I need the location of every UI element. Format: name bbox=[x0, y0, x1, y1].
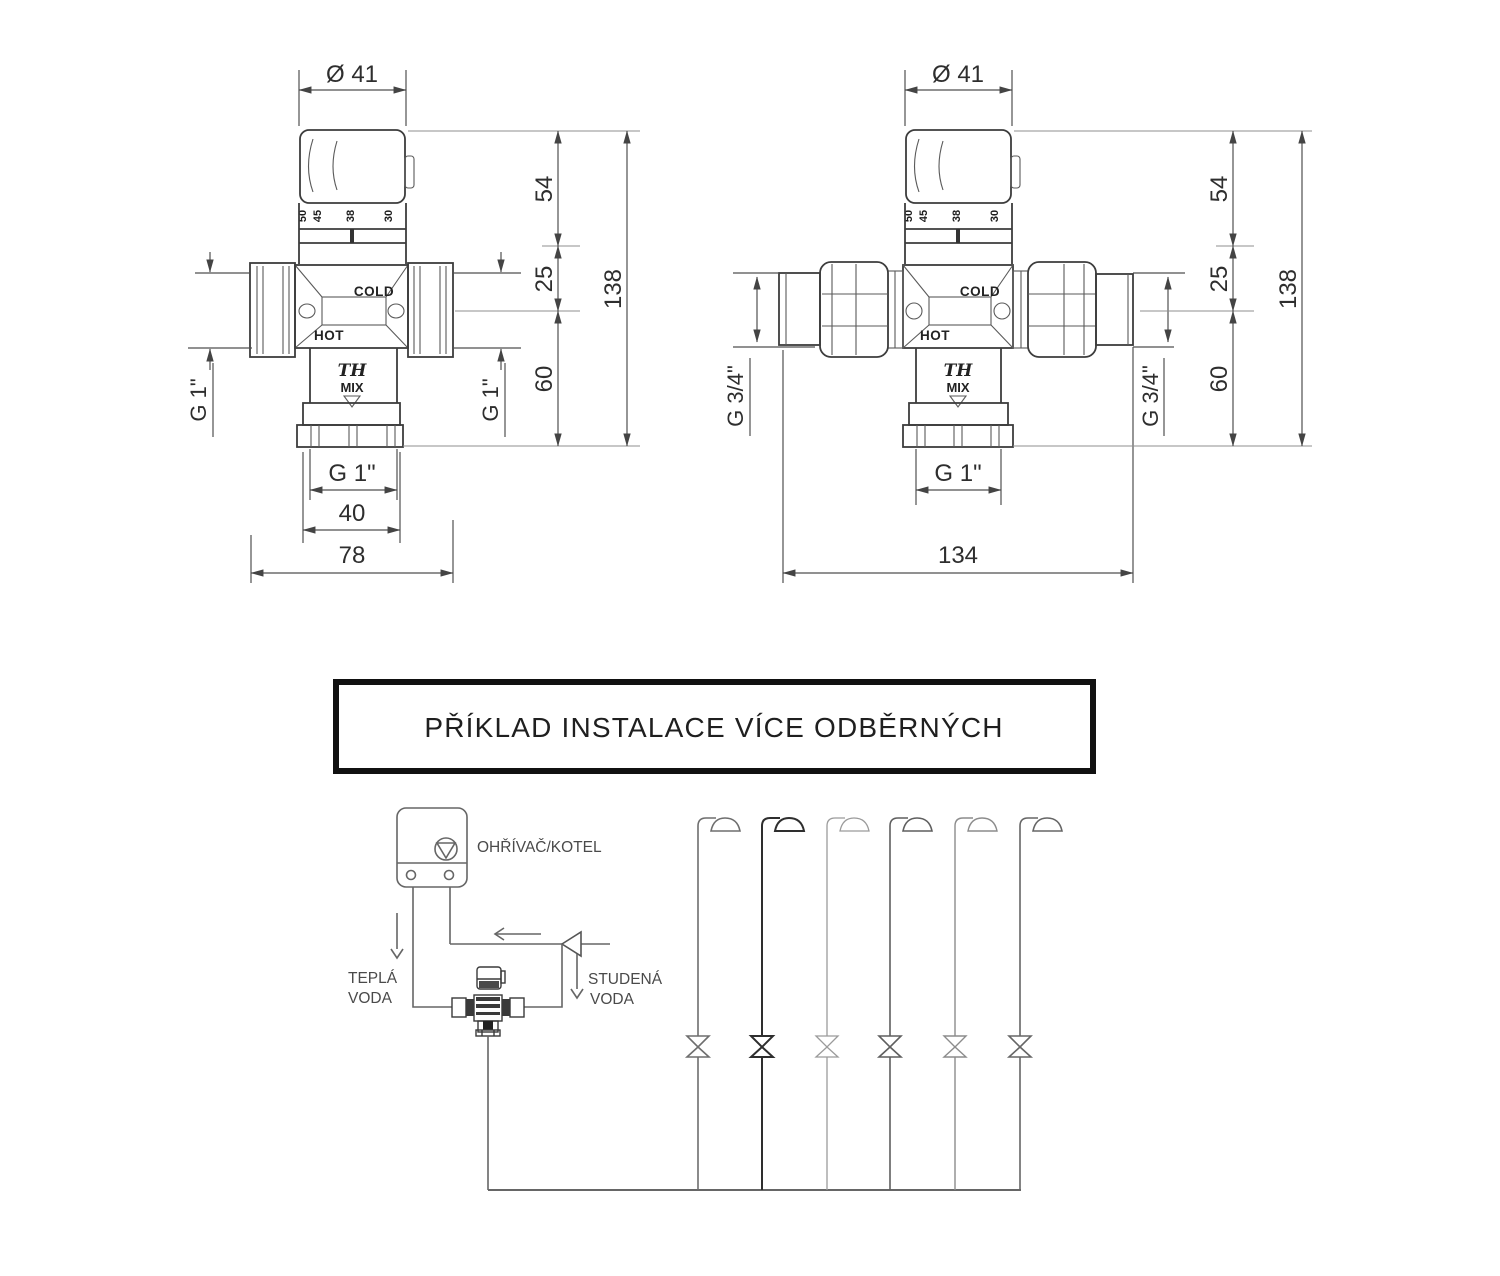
cold-water-label-line2: VODA bbox=[590, 991, 635, 1008]
cold-port-label: COLD bbox=[354, 284, 394, 299]
cold-flow-arrow-icon bbox=[495, 928, 541, 940]
shower-head-icon bbox=[775, 818, 804, 831]
title-box: PŘÍKLAD INSTALACE VÍCE ODBĚRNÝCH bbox=[336, 682, 1093, 771]
flow-direction-triangle bbox=[344, 396, 360, 407]
tailpiece-left bbox=[779, 273, 820, 345]
brand-label: TH bbox=[338, 361, 368, 381]
shower-head-icon bbox=[1033, 818, 1062, 831]
total-height-label: 138 bbox=[600, 269, 627, 309]
cold-port-label: COLD bbox=[960, 284, 1000, 299]
lower-height-label: 60 bbox=[531, 366, 558, 393]
hot-port-label: HOT bbox=[314, 328, 344, 343]
knob-height-label: 54 bbox=[531, 176, 558, 203]
valve-right-union-nuts bbox=[779, 262, 1133, 357]
valve-right-outlet: TH MIX bbox=[903, 348, 1013, 447]
valve-right-diameter-label: Ø 41 bbox=[932, 61, 984, 88]
valve-left-bottom-dims: G 1" 40 78 bbox=[251, 449, 453, 583]
valve-right-port-right-dim: G 3/4" bbox=[1133, 273, 1185, 436]
body-height-label: 25 bbox=[531, 266, 558, 293]
valve-right-diameter-dim: Ø 41 bbox=[905, 61, 1012, 126]
valve-right-drawing: Ø 41 50 45 38 30 COLD HO bbox=[723, 61, 1312, 583]
scale-mark: 38 bbox=[951, 210, 963, 222]
shower-riser bbox=[944, 818, 997, 1190]
shower-riser bbox=[687, 818, 740, 1190]
shower-riser bbox=[816, 818, 869, 1190]
hot-flow-arrow-icon bbox=[391, 913, 403, 958]
scale-mark: 38 bbox=[345, 210, 357, 222]
valve-left-knob: 50 45 38 30 bbox=[297, 130, 414, 264]
valve-left-side-nuts bbox=[250, 263, 453, 357]
valve-left-outlet: TH MIX bbox=[297, 348, 403, 447]
riser-valve-icon bbox=[687, 1036, 709, 1057]
screw-hole bbox=[994, 303, 1010, 319]
valve-left-port-right-dim: G 1" bbox=[453, 252, 521, 437]
hot-water-label-line2: VODA bbox=[348, 990, 393, 1007]
riser-valve-icon bbox=[1009, 1036, 1031, 1057]
side-port-right-label: G 1" bbox=[478, 378, 503, 421]
screw-hole bbox=[388, 304, 404, 318]
overall-width-label: 78 bbox=[339, 542, 366, 569]
installation-schematic: OHŘÍVAČ/KOTEL TEPLÁ VODA STUDENÁ VODA bbox=[348, 808, 1062, 1190]
cold-down-arrow-icon bbox=[571, 954, 583, 998]
technical-drawing-page: Ø 41 50 45 38 30 COL bbox=[0, 0, 1500, 1276]
boiler-symbol bbox=[397, 808, 467, 887]
scale-mark: 30 bbox=[989, 210, 1001, 222]
cold-water-drop-pipe bbox=[524, 944, 562, 1007]
valve-left-diameter-label: Ø 41 bbox=[326, 61, 378, 88]
total-height-label: 138 bbox=[1275, 269, 1302, 309]
shower-riser bbox=[879, 818, 932, 1190]
riser-valve-icon bbox=[944, 1036, 966, 1057]
outlet-thread-label: G 1" bbox=[934, 460, 981, 487]
valve-right-port-left-dim: G 3/4" bbox=[723, 273, 815, 436]
mixing-valve-drawing: Ø 41 50 45 38 30 COL bbox=[0, 0, 1500, 1276]
valve-right-knob: 50 45 38 30 bbox=[903, 130, 1020, 264]
lower-height-label: 60 bbox=[1206, 366, 1233, 393]
brand-label: TH bbox=[944, 361, 974, 381]
mix-label: MIX bbox=[946, 380, 969, 395]
valve-left-port-left-dim: G 1" bbox=[186, 252, 252, 437]
screw-hole bbox=[906, 303, 922, 319]
valve-left-body: COLD HOT bbox=[295, 265, 408, 348]
hot-port-label: HOT bbox=[920, 328, 950, 343]
boiler-label: OHŘÍVAČ/KOTEL bbox=[477, 839, 602, 856]
outlet-thread-label: G 1" bbox=[328, 460, 375, 487]
side-port-left-label: G 1" bbox=[186, 378, 211, 421]
installation-title: PŘÍKLAD INSTALACE VÍCE ODBĚRNÝCH bbox=[424, 712, 1003, 743]
valve-left-drawing: Ø 41 50 45 38 30 COL bbox=[186, 61, 640, 583]
body-height-label: 25 bbox=[1206, 266, 1233, 293]
screw-hole bbox=[299, 304, 315, 318]
scale-mark: 45 bbox=[312, 210, 324, 222]
riser-valve-icon bbox=[879, 1036, 901, 1057]
pump-triangle-icon bbox=[437, 843, 455, 858]
mixing-valve-symbol bbox=[452, 967, 524, 1036]
scale-mark: 30 bbox=[383, 210, 395, 222]
riser-valve-icon bbox=[816, 1036, 838, 1057]
valve-left-height-dims: 54 25 60 138 bbox=[403, 131, 640, 446]
knob-tab bbox=[1011, 156, 1020, 188]
scale-mark: 45 bbox=[918, 210, 930, 222]
valve-left-diameter-dim: Ø 41 bbox=[299, 61, 406, 126]
scale-pointer-tick bbox=[956, 229, 960, 243]
knob-height-label: 54 bbox=[1206, 176, 1233, 203]
shower-riser bbox=[751, 818, 804, 1190]
shower-head-icon bbox=[840, 818, 869, 831]
check-valve-icon bbox=[562, 932, 581, 956]
cold-water-label-line1: STUDENÁ bbox=[588, 971, 663, 988]
scale-pointer-tick bbox=[350, 229, 354, 243]
side-port-left-label: G 3/4" bbox=[723, 365, 748, 427]
overall-width-label: 134 bbox=[938, 542, 978, 569]
hot-water-label-line1: TEPLÁ bbox=[348, 970, 398, 987]
shower-riser bbox=[1009, 818, 1062, 1190]
valve-left-temperature-scale: 50 45 38 30 bbox=[297, 210, 395, 222]
flow-direction-triangle bbox=[950, 396, 966, 407]
valve-right-temperature-scale: 50 45 38 30 bbox=[903, 210, 1001, 222]
hot-water-pipe bbox=[413, 887, 452, 1007]
riser-valve-icon bbox=[751, 1036, 773, 1057]
shower-head-icon bbox=[968, 818, 997, 831]
shower-head-icon bbox=[711, 818, 740, 831]
valve-right-body: COLD HOT bbox=[903, 265, 1013, 348]
mix-label: MIX bbox=[340, 380, 363, 395]
knob-tab bbox=[405, 156, 414, 188]
side-port-right-label: G 3/4" bbox=[1138, 365, 1163, 427]
shower-head-icon bbox=[903, 818, 932, 831]
outlet-width-label: 40 bbox=[339, 500, 366, 527]
